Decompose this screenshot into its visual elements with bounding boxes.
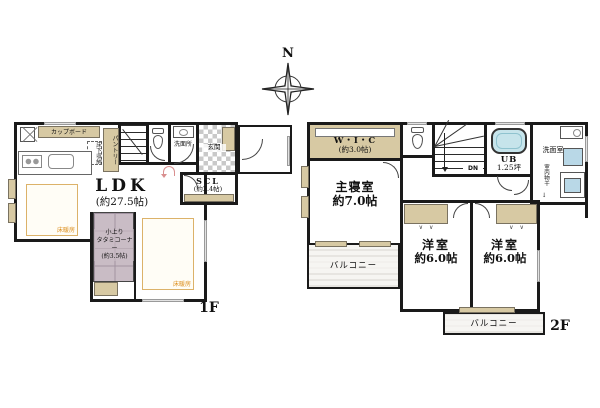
- f1-wall-toilet-left: [146, 122, 149, 162]
- indoor-drying-arrow: ↓: [539, 192, 549, 199]
- bedroom-center-size: 約6.0帖: [405, 252, 467, 266]
- tatami-label: 小上り タタミコーナー (約3.5帖): [94, 229, 135, 261]
- closet: [496, 204, 537, 224]
- bedroom-right-name: 洋室: [474, 238, 536, 252]
- bedroom-right-size: 約6.0帖: [474, 252, 536, 266]
- master-bedroom-label: 主寝室 約7.0帖: [317, 180, 393, 208]
- washstand-icon: [173, 126, 194, 138]
- stairs-1f: [121, 125, 146, 163]
- floor2-label: 2F: [545, 318, 575, 335]
- ub-size: 1.25坪: [487, 164, 531, 173]
- bath-door-arc: [497, 176, 512, 191]
- hall-door-arc: [174, 144, 194, 164]
- f1-wall-leftroom-bottom: [14, 239, 93, 242]
- floor-heating-label: 床暖房: [173, 282, 191, 288]
- tatami-step: [94, 282, 118, 296]
- toilet-tank-icon: [152, 128, 164, 134]
- window: [407, 122, 427, 125]
- closet: [404, 204, 448, 224]
- ldk-label: LDK (約27.5帖): [78, 176, 166, 208]
- floor-heating-area: 床暖房: [26, 184, 78, 236]
- stairs-down-arrowhead: [442, 167, 448, 172]
- stairs-2f: DN: [435, 125, 484, 174]
- indoor-drying-label: 室内物干: [539, 158, 549, 192]
- compass: N: [258, 46, 318, 120]
- laundry-sink-icon: [564, 178, 581, 193]
- window-sill: [359, 241, 391, 247]
- balcony-left-label: バルコニー: [309, 261, 398, 271]
- washroom-cabinet: [560, 172, 585, 198]
- washroom-door-arc: [514, 180, 529, 195]
- washbasin-icon: [179, 129, 188, 136]
- window: [142, 299, 184, 302]
- ldk-name: LDK: [78, 176, 166, 196]
- bedroom-center-label: 洋室 約6.0帖: [405, 238, 467, 266]
- floor-heating-label: 床暖房: [57, 228, 75, 234]
- toilet-door-arc: [150, 146, 165, 161]
- floor1-label: 1F: [194, 300, 224, 317]
- window-shutter-box: [301, 166, 309, 188]
- window: [495, 122, 525, 125]
- floor1-plan: カップボード パントリー 床下収納 洗面所 玄関 SCL (約2.4帖): [14, 122, 292, 316]
- f1-wall-tatami-right: [134, 212, 136, 299]
- f1-wall-scl-top: [180, 172, 238, 175]
- balcony-left: バルコニー: [307, 243, 400, 289]
- stairs-arrow-line: [122, 129, 142, 155]
- washstand-icon: [560, 126, 583, 139]
- tatami-line2: タタミコーナー: [94, 237, 135, 253]
- porch: [238, 125, 292, 174]
- f2-wall-toilet-bottom: [400, 155, 435, 158]
- window: [44, 122, 76, 125]
- washbasin-icon: [573, 129, 581, 137]
- toilet-tank-icon: [411, 127, 424, 133]
- f2-wall-stairs-bottom: [432, 174, 533, 177]
- entrance-label: 玄関: [202, 144, 226, 152]
- kitchen-unit-box: [20, 127, 35, 142]
- toilet-bowl-icon: [412, 134, 423, 149]
- balcony-bottom-label: バルコニー: [445, 319, 543, 329]
- f2-wall-wic-bottom: [307, 158, 403, 161]
- floor-heating-area: 床暖房: [142, 218, 194, 290]
- bathtub-inner: [496, 133, 522, 149]
- f1-wall-scl-left: [180, 172, 183, 205]
- tatami-line1: 小上り: [94, 229, 135, 237]
- wic-room: W・I・C (約3.0帖): [310, 125, 400, 158]
- porch-window: [287, 136, 290, 166]
- master-door-arc: [383, 162, 399, 178]
- window-shutter-box: [8, 179, 16, 199]
- f2-wall-bedroom-divider: [470, 200, 473, 312]
- tatami-corner: 小上り タタミコーナー (約3.5帖): [93, 212, 134, 282]
- bathtub-icon: [491, 128, 527, 154]
- stairs-dn-label: DN: [463, 165, 483, 172]
- stairs-down-arrow-line: [444, 133, 445, 167]
- bedroom-door-arc: [453, 203, 468, 218]
- balcony-bottom: バルコニー: [443, 312, 545, 335]
- tatami-size: (約3.5帖): [94, 253, 135, 261]
- washing-machine-icon: [563, 148, 583, 166]
- pantry: パントリー: [103, 128, 119, 172]
- front-door-arc: [242, 139, 263, 160]
- window-sill: [315, 241, 347, 247]
- master-bedroom-name: 主寝室: [317, 180, 393, 194]
- ldk-size: (約27.5帖): [78, 196, 166, 208]
- f1-wall-scl-bottom: [180, 202, 238, 205]
- closet-hanger-marks: ∨ ∨: [404, 224, 448, 231]
- kitchen-counter: [18, 151, 92, 175]
- window: [585, 136, 588, 162]
- window: [204, 220, 207, 262]
- closet-hanger-marks: ∨ ∨: [496, 224, 537, 231]
- kitchen-sink-icon: [48, 154, 74, 169]
- stove-icon: [22, 155, 42, 168]
- window-shutter-box: [301, 196, 309, 218]
- master-bedroom-size: 約7.0帖: [317, 194, 393, 208]
- floor-plan-canvas: N カップボード パントリー 床下収納: [0, 0, 600, 408]
- window: [537, 250, 540, 282]
- scl-shelf: [184, 194, 234, 202]
- bedroom-right-label: 洋室 約6.0帖: [474, 238, 536, 266]
- f2-wall-center-left: [400, 122, 403, 312]
- bedroom-center-name: 洋室: [405, 238, 467, 252]
- floor2-plan: W・I・C (約3.0帖) DN UB 1.25坪 洗面室: [307, 122, 588, 337]
- window-sill: [459, 307, 515, 313]
- bedroom-door-arc: [475, 203, 490, 218]
- cupboard: カップボード: [38, 126, 100, 138]
- compass-rose-icon: [260, 59, 316, 119]
- wic-size: (約3.0帖): [310, 146, 400, 155]
- window-shutter-box: [8, 203, 16, 223]
